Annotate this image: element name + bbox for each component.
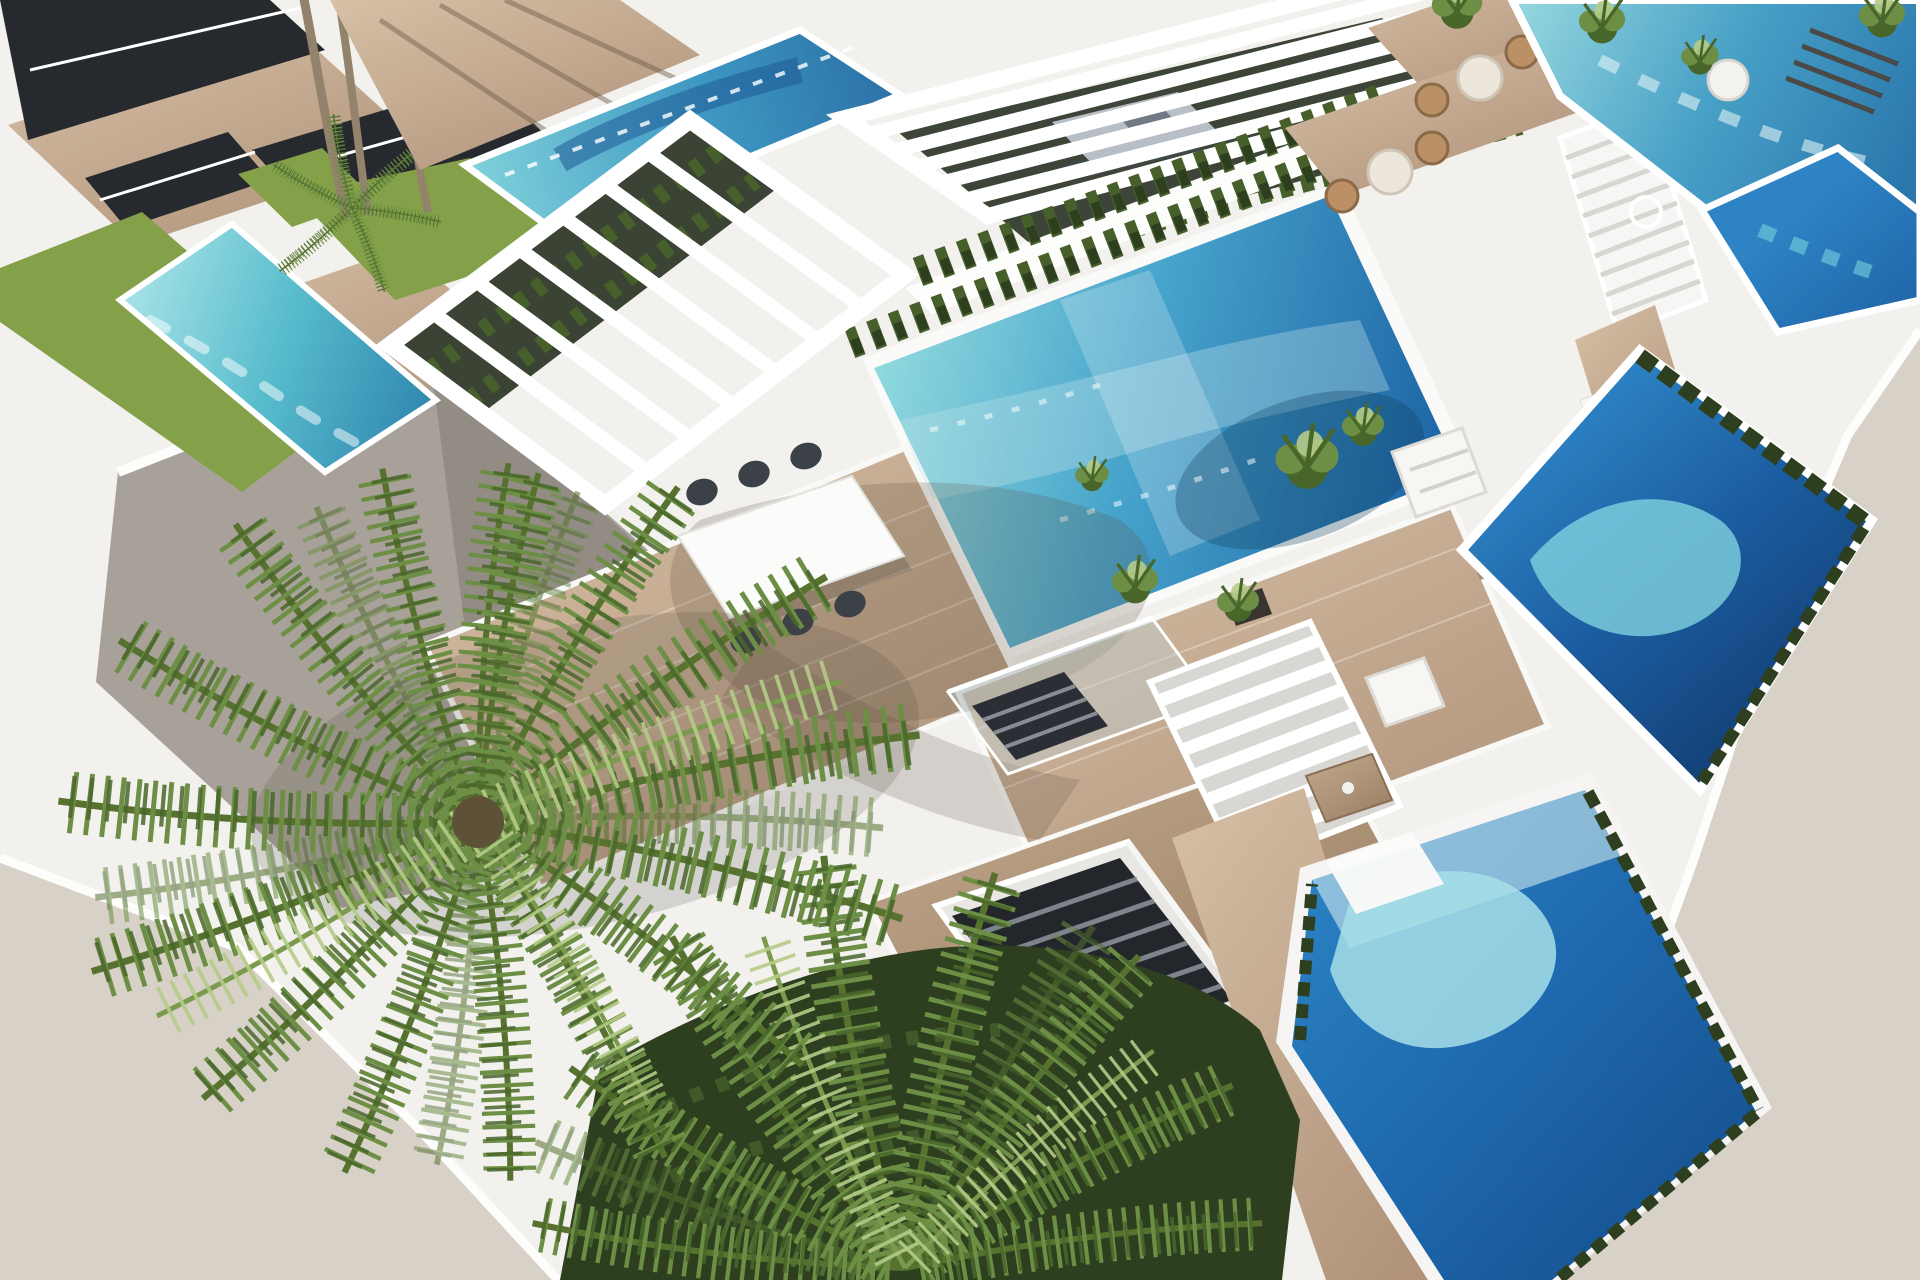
palm-crown-core — [452, 796, 504, 848]
table-decor — [1342, 782, 1354, 794]
round-table — [1708, 60, 1748, 100]
render-viewport: Aerial 3D rendering of a modern white vi… — [0, 0, 1920, 1280]
villa-render — [0, 0, 1920, 1280]
